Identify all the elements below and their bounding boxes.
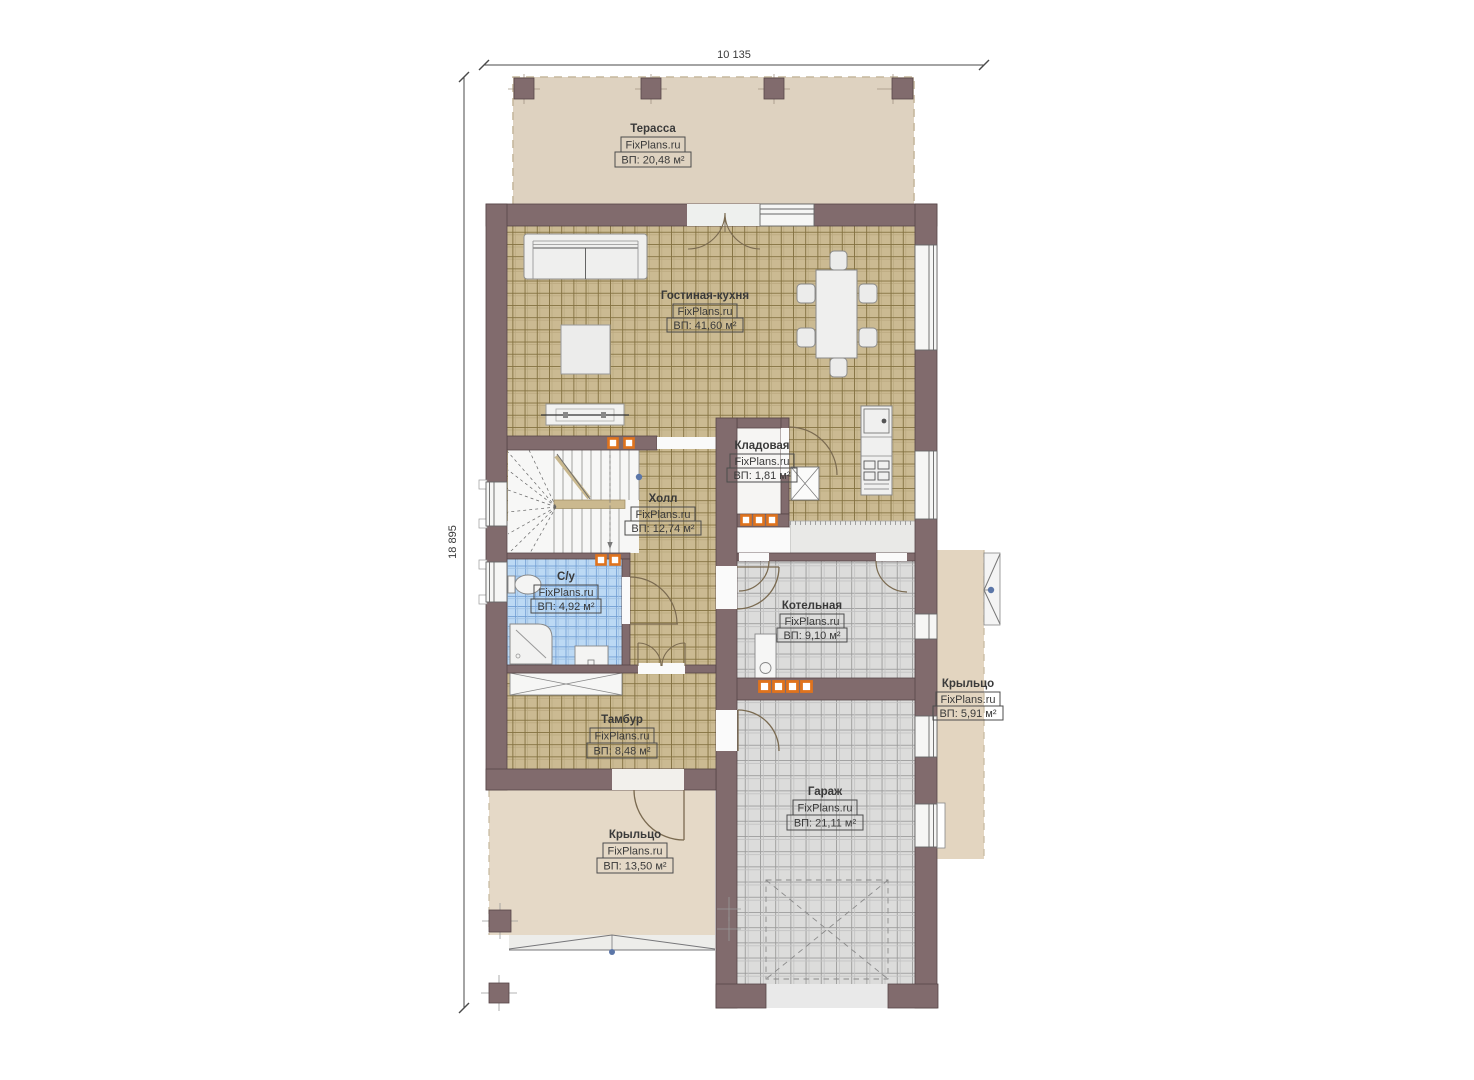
svg-text:Котельная: Котельная [782, 600, 842, 612]
svg-text:ВП: 12,74 м²: ВП: 12,74 м² [631, 523, 695, 535]
svg-text:ВП: 8,48 м²: ВП: 8,48 м² [593, 746, 650, 758]
svg-text:Терасса: Терасса [630, 123, 676, 135]
svg-text:FixPlans.ru: FixPlans.ru [538, 587, 593, 599]
svg-text:ВП: 20,48 м²: ВП: 20,48 м² [621, 155, 685, 167]
svg-text:ВП: 5,91 м²: ВП: 5,91 м² [939, 708, 996, 720]
svg-text:ВП: 21,11 м²: ВП: 21,11 м² [794, 818, 857, 830]
svg-text:С/у: С/у [557, 571, 576, 583]
svg-text:Гараж: Гараж [808, 786, 843, 798]
svg-text:Крыльцо: Крыльцо [942, 678, 994, 690]
svg-text:Кладовая: Кладовая [734, 440, 789, 452]
svg-text:ВП: 4,92 м²: ВП: 4,92 м² [537, 601, 594, 613]
svg-text:Гостиная-кухня: Гостиная-кухня [661, 290, 749, 302]
svg-text:Тамбур: Тамбур [601, 714, 643, 726]
svg-text:FixPlans.ru: FixPlans.ru [635, 509, 690, 521]
svg-text:FixPlans.ru: FixPlans.ru [784, 616, 839, 628]
svg-text:FixPlans.ru: FixPlans.ru [797, 803, 852, 815]
svg-text:FixPlans.ru: FixPlans.ru [940, 694, 995, 706]
svg-text:ВП: 9,10 м²: ВП: 9,10 м² [783, 630, 840, 642]
svg-text:ВП: 13,50 м²: ВП: 13,50 м² [603, 861, 667, 873]
svg-text:ВП: 1,81 м²: ВП: 1,81 м² [733, 470, 790, 482]
svg-text:FixPlans.ru: FixPlans.ru [625, 140, 680, 152]
svg-text:FixPlans.ru: FixPlans.ru [734, 456, 789, 468]
svg-text:10 135: 10 135 [717, 49, 751, 61]
svg-text:Крыльцо: Крыльцо [609, 829, 661, 841]
svg-text:FixPlans.ru: FixPlans.ru [594, 731, 649, 743]
svg-text:ВП: 41,60 м²: ВП: 41,60 м² [673, 320, 737, 332]
svg-text:Холл: Холл [649, 493, 678, 505]
svg-text:FixPlans.ru: FixPlans.ru [677, 306, 732, 318]
svg-text:18 895: 18 895 [447, 525, 459, 559]
svg-text:FixPlans.ru: FixPlans.ru [607, 846, 662, 858]
